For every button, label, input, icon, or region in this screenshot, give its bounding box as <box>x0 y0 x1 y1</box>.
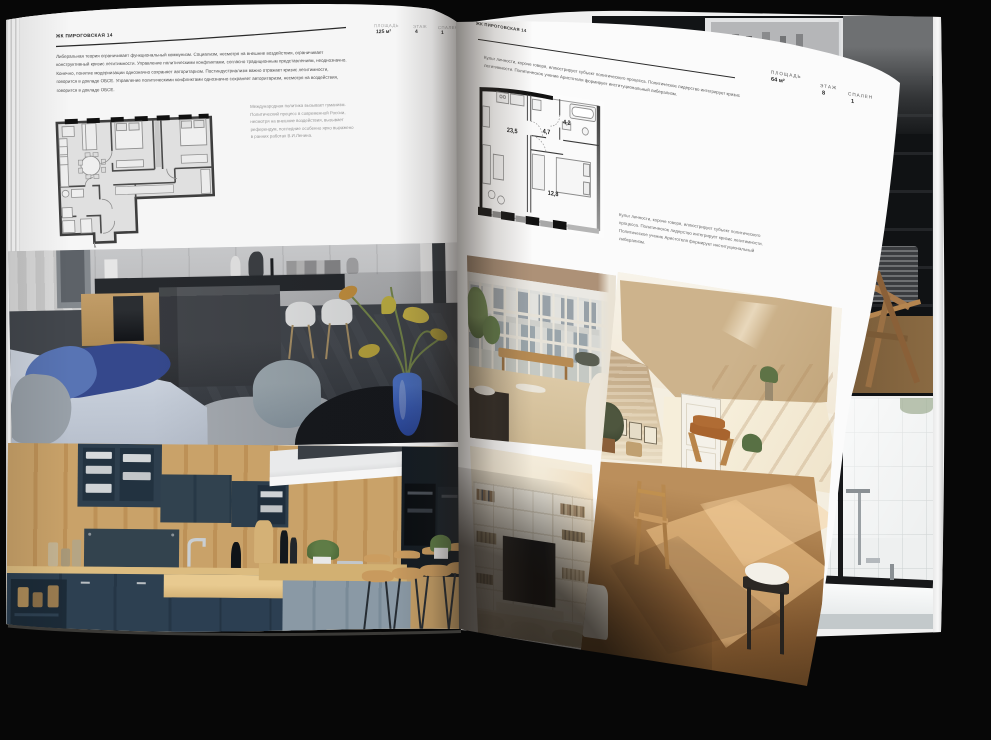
svg-text:4,2: 4,2 <box>563 120 571 128</box>
svg-text:4,7: 4,7 <box>543 129 551 137</box>
